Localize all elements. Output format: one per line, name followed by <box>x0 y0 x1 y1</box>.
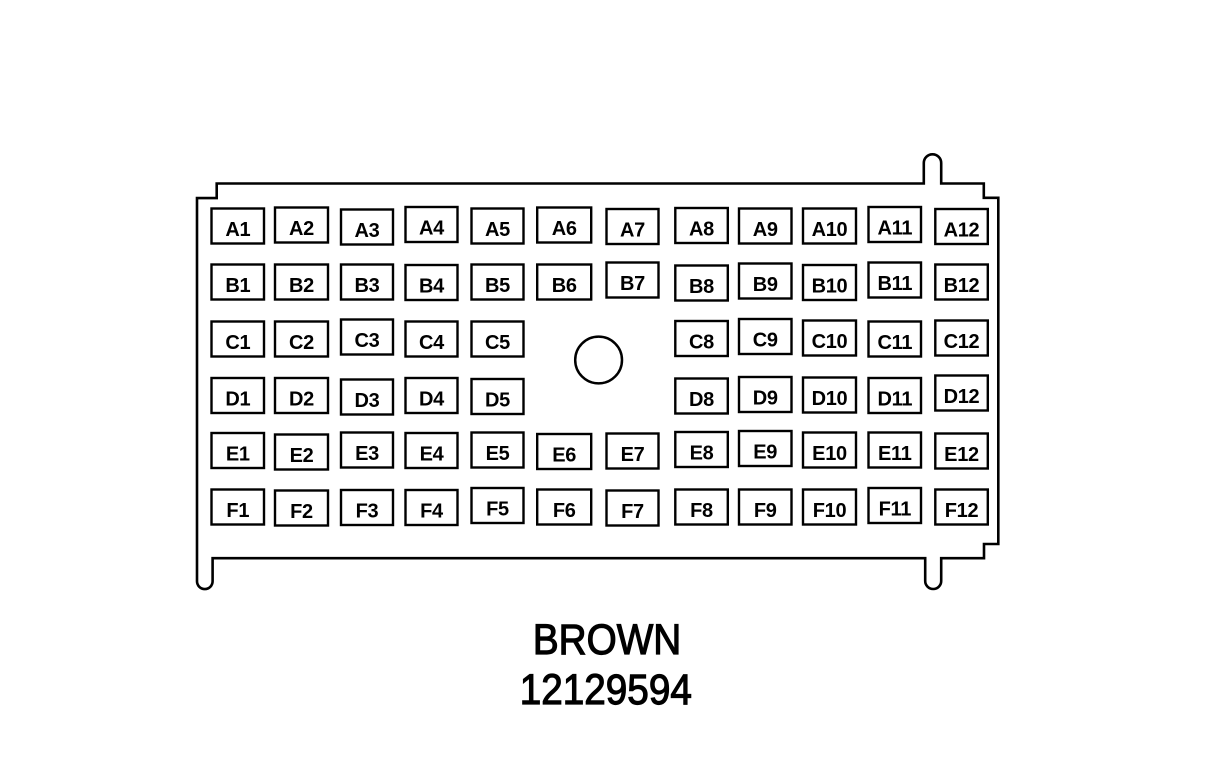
svg-text:E8: E8 <box>690 443 714 465</box>
svg-text:D1: D1 <box>225 389 250 411</box>
svg-text:A12: A12 <box>944 220 980 242</box>
svg-text:D4: D4 <box>419 389 445 411</box>
svg-text:A4: A4 <box>419 218 445 240</box>
svg-text:B3: B3 <box>355 275 380 297</box>
svg-text:D12: D12 <box>944 386 980 408</box>
svg-text:A1: A1 <box>225 219 250 241</box>
svg-text:B11: B11 <box>877 273 912 295</box>
svg-text:A8: A8 <box>689 219 714 241</box>
svg-text:B1: B1 <box>225 275 250 297</box>
svg-text:C3: C3 <box>355 330 380 352</box>
svg-text:A2: A2 <box>289 218 314 240</box>
svg-text:F1: F1 <box>226 500 249 522</box>
svg-text:D11: D11 <box>877 389 912 411</box>
svg-text:A9: A9 <box>753 219 778 241</box>
svg-text:E6: E6 <box>552 445 576 467</box>
svg-text:E4: E4 <box>420 444 445 466</box>
svg-text:E1: E1 <box>226 444 250 466</box>
svg-text:B9: B9 <box>753 274 778 296</box>
svg-text:B10: B10 <box>812 276 848 298</box>
svg-text:E5: E5 <box>486 443 510 465</box>
svg-text:F4: F4 <box>420 501 444 523</box>
svg-text:E12: E12 <box>944 444 979 466</box>
svg-text:D8: D8 <box>689 389 714 411</box>
svg-text:F11: F11 <box>879 499 912 521</box>
svg-text:A10: A10 <box>812 219 848 241</box>
svg-text:F3: F3 <box>356 501 379 523</box>
svg-text:F2: F2 <box>290 501 313 523</box>
svg-text:D9: D9 <box>753 388 778 410</box>
svg-text:E2: E2 <box>290 445 314 467</box>
svg-text:E7: E7 <box>621 444 645 466</box>
svg-text:C11: C11 <box>877 332 912 354</box>
svg-text:E10: E10 <box>812 443 847 465</box>
svg-text:B4: B4 <box>419 276 445 298</box>
svg-text:C8: C8 <box>689 332 714 354</box>
svg-text:C4: C4 <box>419 332 445 354</box>
svg-text:12129594: 12129594 <box>520 665 692 713</box>
svg-text:B5: B5 <box>485 275 510 297</box>
svg-text:A11: A11 <box>877 218 912 240</box>
svg-text:E9: E9 <box>753 442 777 464</box>
svg-text:D10: D10 <box>812 388 848 410</box>
svg-text:A7: A7 <box>620 220 645 242</box>
svg-text:D5: D5 <box>485 390 510 412</box>
svg-text:F6: F6 <box>553 500 576 522</box>
svg-text:B8: B8 <box>689 276 714 298</box>
svg-text:F10: F10 <box>813 500 847 522</box>
svg-text:F7: F7 <box>621 501 644 523</box>
svg-text:A5: A5 <box>485 219 510 241</box>
svg-text:D2: D2 <box>289 389 314 411</box>
svg-text:B7: B7 <box>620 273 645 295</box>
svg-text:F12: F12 <box>945 500 979 522</box>
svg-text:BROWN: BROWN <box>533 615 681 663</box>
svg-text:A6: A6 <box>552 218 577 240</box>
svg-text:C2: C2 <box>289 332 314 354</box>
svg-text:E3: E3 <box>355 443 379 465</box>
svg-text:F8: F8 <box>690 500 713 522</box>
svg-text:C9: C9 <box>753 330 778 352</box>
svg-text:F9: F9 <box>754 500 777 522</box>
svg-text:B6: B6 <box>552 275 577 297</box>
svg-text:B12: B12 <box>944 275 980 297</box>
svg-text:B2: B2 <box>289 275 314 297</box>
svg-text:A3: A3 <box>355 220 380 242</box>
svg-text:C5: C5 <box>485 332 510 354</box>
svg-text:E11: E11 <box>878 443 912 465</box>
svg-text:D3: D3 <box>355 390 380 412</box>
svg-text:F5: F5 <box>486 499 509 521</box>
svg-text:C1: C1 <box>225 332 250 354</box>
svg-text:C12: C12 <box>944 331 980 353</box>
svg-text:C10: C10 <box>812 331 848 353</box>
